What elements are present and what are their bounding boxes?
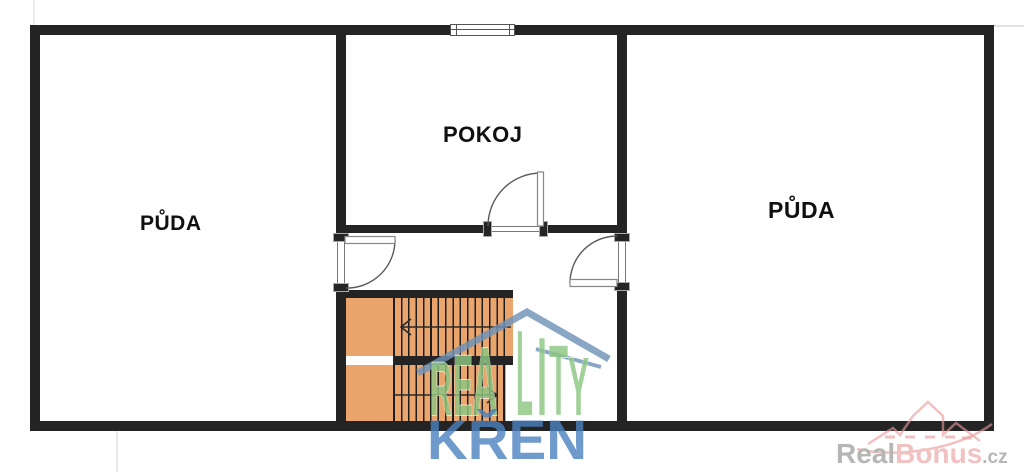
realbonus-logo: RealBonus.cz [836, 440, 1008, 468]
door-jamb [333, 233, 349, 242]
door-threshold [492, 231, 539, 232]
room-label-puda-right: PŮDA [768, 199, 835, 222]
scan-artifact-line [994, 25, 1024, 27]
door-threshold [625, 242, 626, 282]
wall-outer-bottom [30, 421, 994, 431]
door-jamb [539, 221, 548, 237]
wall-pokoj-bottom-left [336, 225, 484, 233]
door-arc [346, 240, 395, 288]
door-threshold [618, 242, 619, 282]
door-leaf [538, 172, 544, 226]
room-label-pokoj: POKOJ [443, 124, 523, 146]
wall-interior-left-upper [336, 25, 346, 233]
watermark-reality-letter: Y [568, 340, 589, 433]
wall-pokoj-bottom-right [547, 225, 627, 233]
door-threshold [344, 242, 345, 283]
door-jamb [483, 221, 492, 237]
door-jamb [333, 283, 349, 292]
watermark-roof-edge [536, 349, 601, 367]
wall-interior-right-lower [617, 291, 627, 431]
wall-outer-right [984, 25, 994, 431]
stair-landing-divider [393, 356, 513, 365]
stair-treads-upper [393, 298, 505, 356]
room-label-puda-left: PŮDA [140, 213, 202, 234]
plan-overlay: R E A L I T Y KŘEN [0, 0, 1024, 472]
wall-outer-left [30, 25, 40, 431]
door-leaf [570, 280, 617, 287]
door-leaf [345, 237, 395, 244]
realbonus-logo-tld: .cz [982, 447, 1007, 468]
floorplan-canvas: PŮDA POKOJ PŮDA R E A L I T Y KŘEN [0, 0, 1024, 472]
scan-artifact-line [33, 0, 35, 25]
window-symbol [450, 24, 515, 36]
scan-artifact-line [116, 431, 118, 472]
window-jamb-tick [456, 25, 457, 35]
realbonus-logo-part1: Real [836, 438, 895, 469]
window-jamb-tick [509, 25, 510, 35]
realbonus-logo-part2: Bonus [895, 438, 982, 469]
door-jamb [614, 233, 630, 242]
door-threshold [337, 242, 338, 283]
window-mullion [451, 29, 514, 30]
door-threshold [492, 226, 539, 227]
wall-interior-right-upper [617, 25, 627, 233]
door-arc [488, 173, 541, 226]
door-arc [570, 236, 617, 283]
door-jamb [614, 282, 630, 291]
stair-treads-lower [393, 365, 505, 421]
wall-interior-left-lower [336, 292, 346, 431]
wall-stairs-top [336, 290, 513, 298]
